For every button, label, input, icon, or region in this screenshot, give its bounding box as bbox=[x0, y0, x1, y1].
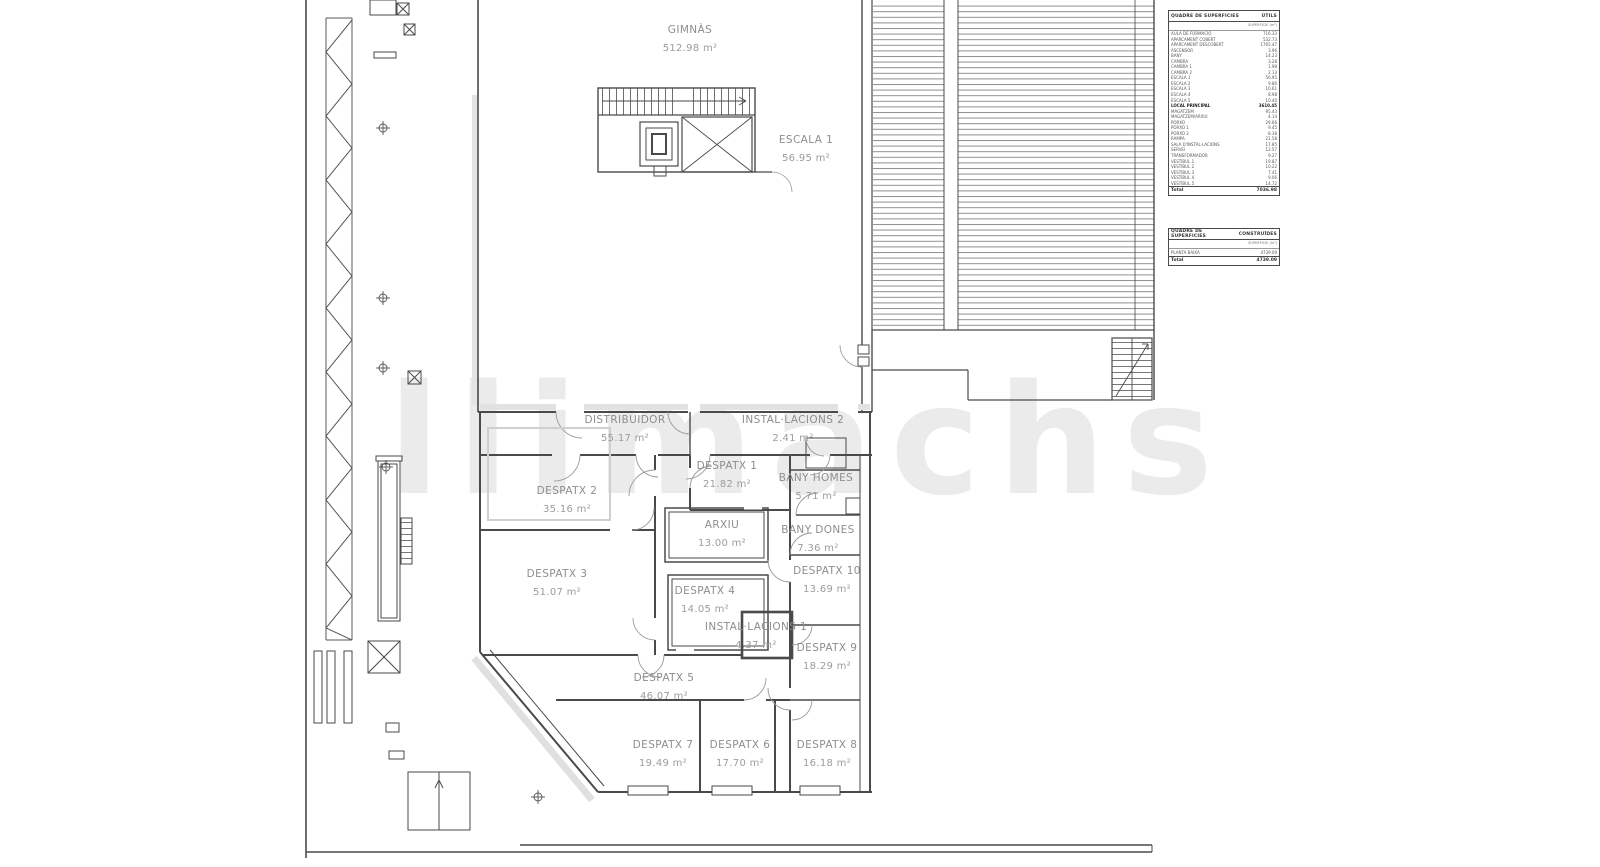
legend-utils-colheader: SUPERFICIE (m²) bbox=[1169, 22, 1279, 31]
legend-built-total: Total4739.09 bbox=[1169, 256, 1279, 265]
legend-utils-total: Total7036.98 bbox=[1169, 186, 1279, 195]
room-label-escala1: ESCALA 156.95 m² bbox=[731, 135, 881, 164]
legend-utils-header: QUADRE DE SUPERFICIESÚTILS bbox=[1169, 11, 1279, 22]
room-label-installacions2: INSTAL·LACIONS 22.41 m² bbox=[718, 415, 868, 444]
legend-built-colheader: SUPERFICIE (m²) bbox=[1169, 240, 1279, 249]
room-label-despatx8: DESPATX 816.18 m² bbox=[752, 740, 902, 769]
legend-row-planta-baixa: PLANTA BAIXA4739.09 bbox=[1169, 249, 1279, 256]
room-label-bany-homes: BANY HOMES5.71 m² bbox=[741, 473, 891, 502]
room-label-despatx5: DESPATX 546.07 m² bbox=[589, 673, 739, 702]
survey-marker-icons bbox=[376, 121, 545, 804]
room-label-distribuidor: DISTRIBUIDOR55.17 m² bbox=[550, 415, 700, 444]
gym-walls bbox=[472, 0, 872, 412]
hatched-roof-building bbox=[872, 0, 1154, 412]
legend-table-utils: QUADRE DE SUPERFICIESÚTILS SUPERFICIE (m… bbox=[1168, 10, 1280, 196]
room-label-gimnas: GIMNÀS512.98 m² bbox=[615, 25, 765, 54]
room-label-despatx2: DESPATX 235.16 m² bbox=[492, 486, 642, 515]
floor-plan-page: llimachs bbox=[0, 0, 1600, 867]
legend-built-header: QUADRE DE SUPERFICIESCONSTRUÏDES bbox=[1169, 229, 1279, 240]
southwest-objects bbox=[314, 651, 470, 830]
room-label-bany-dones: BANY DONES7.36 m² bbox=[743, 525, 893, 554]
room-label-despatx9: DESPATX 918.29 m² bbox=[752, 643, 902, 672]
room-label-despatx4: DESPATX 414.05 m² bbox=[630, 586, 780, 615]
fence-zigzag bbox=[326, 18, 352, 640]
west-structure bbox=[368, 456, 412, 673]
room-label-despatx3: DESPATX 351.07 m² bbox=[482, 569, 632, 598]
site-objects-top bbox=[370, 0, 421, 384]
legend-table-built: QUADRE DE SUPERFICIESCONSTRUÏDES SUPERFI… bbox=[1168, 228, 1280, 266]
